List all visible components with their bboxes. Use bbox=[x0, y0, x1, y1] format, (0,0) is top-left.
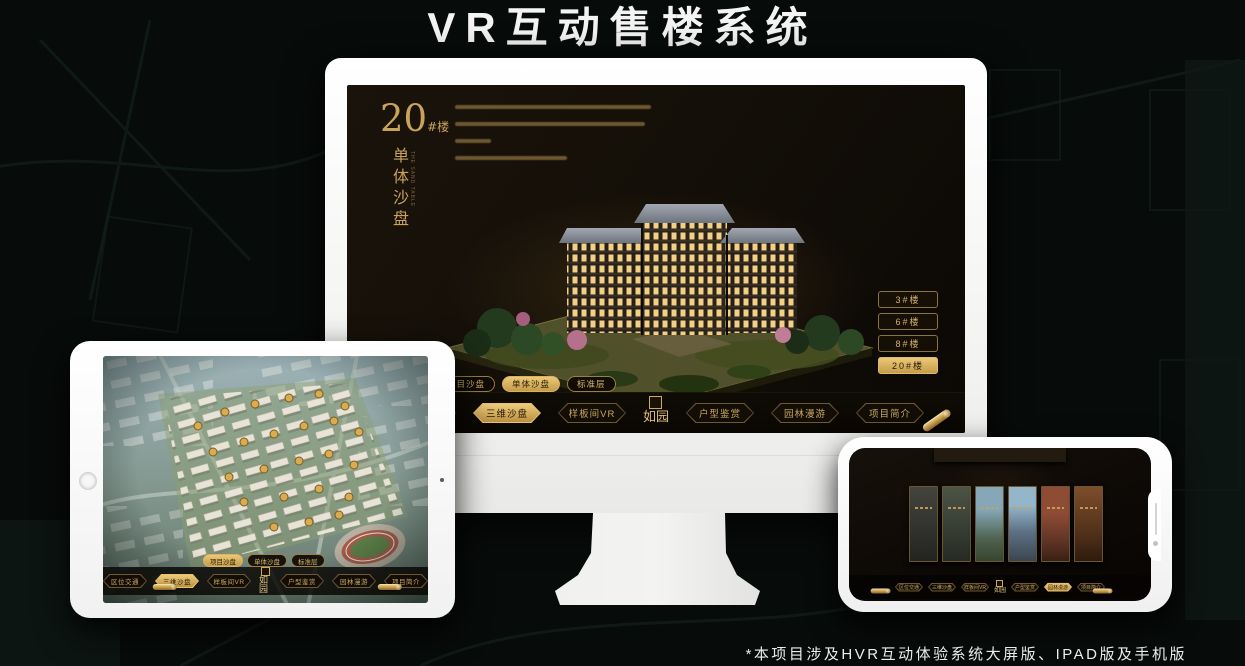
scroll-handle-icon[interactable] bbox=[1093, 589, 1112, 594]
brand-logo: 如园 bbox=[994, 580, 1006, 594]
brand-logo-text: 如园 bbox=[643, 411, 669, 424]
footnote-text: *本项目涉及HVR互动体验系统大屏版、IPAD版及手机版 bbox=[746, 643, 1187, 664]
brand-seal-icon bbox=[649, 396, 662, 409]
menu-item-unit-gallery[interactable]: 户型鉴赏 bbox=[1011, 583, 1039, 592]
building-heading: 20#楼 bbox=[380, 99, 449, 139]
menu-item-project-intro[interactable]: 项目简介 bbox=[856, 403, 924, 423]
description-line bbox=[455, 156, 567, 160]
tablet-sandbox-mode-tabs: 项目沙盘 单体沙盘 标准层 bbox=[203, 554, 325, 567]
menu-item-3d-sandbox[interactable]: 三维沙盘 bbox=[473, 403, 541, 423]
gallery-panel-4[interactable] bbox=[1008, 486, 1037, 562]
floor-button-20[interactable]: 20#楼 bbox=[878, 357, 938, 374]
scroll-handle-icon[interactable] bbox=[153, 584, 176, 590]
menu-item-unit-gallery[interactable]: 户型鉴赏 bbox=[686, 403, 754, 423]
gallery-panel-3[interactable] bbox=[975, 486, 1004, 562]
menu-item-showroom-vr[interactable]: 样板间VR bbox=[207, 574, 251, 588]
menu-item-garden-roam[interactable]: 园林漫游 bbox=[332, 574, 376, 588]
description-line bbox=[455, 105, 651, 109]
gallery-panel-5[interactable] bbox=[1041, 486, 1070, 562]
promo-canvas: VR互动售楼系统 bbox=[0, 0, 1245, 666]
tablet-tab-standard-floor[interactable]: 标准层 bbox=[291, 554, 325, 567]
tab-single-sandbox[interactable]: 单体沙盘 bbox=[502, 376, 560, 392]
scroll-handle-icon[interactable] bbox=[871, 589, 890, 594]
tablet-menubar: 区位交通 三维沙盘 样板间VR 如园 户型鉴赏 园林漫游 项目简介 bbox=[103, 567, 428, 595]
menu-item-location-traffic[interactable]: 区位交通 bbox=[895, 583, 923, 592]
tablet-screen: 项目沙盘 单体沙盘 标准层 区位交通 三维沙盘 样板间VR 如园 户型鉴赏 园林… bbox=[103, 356, 428, 603]
phone-speaker-slit bbox=[1155, 503, 1157, 535]
section-title-vertical: 单体沙盘 bbox=[387, 147, 411, 231]
building-number-unit: #楼 bbox=[427, 120, 449, 134]
floor-button-8[interactable]: 8#楼 bbox=[878, 335, 938, 352]
phone-front-camera bbox=[1153, 541, 1158, 546]
floor-button-group: 3#楼 6#楼 8#楼 20#楼 bbox=[878, 291, 938, 374]
gallery-panel-2[interactable] bbox=[942, 486, 971, 562]
description-line bbox=[455, 122, 645, 126]
brand-seal-icon bbox=[261, 567, 270, 576]
brand-logo: 如园 bbox=[643, 396, 669, 424]
gallery-panel-6[interactable] bbox=[1074, 486, 1103, 562]
brand-seal-icon bbox=[996, 580, 1003, 587]
tablet-camera bbox=[440, 478, 444, 482]
brand-logo-text: 如园 bbox=[994, 588, 1006, 594]
tablet-tab-project-sandbox[interactable]: 项目沙盘 bbox=[203, 554, 243, 567]
menu-item-location-traffic[interactable]: 区位交通 bbox=[103, 574, 147, 588]
sandbox-mode-tabs: 项目沙盘 单体沙盘 标准层 bbox=[437, 376, 616, 392]
menu-item-garden-roam[interactable]: 园林漫游 bbox=[771, 403, 839, 423]
gallery-panel-1[interactable] bbox=[909, 486, 938, 562]
menu-item-3d-sandbox[interactable]: 三维沙盘 bbox=[928, 583, 956, 592]
tablet-home-button[interactable] bbox=[79, 472, 97, 490]
menu-item-showroom-vr[interactable]: 样板间VR bbox=[961, 583, 989, 592]
scroll-handle-icon[interactable] bbox=[378, 584, 401, 590]
scroll-handle-icon[interactable] bbox=[921, 409, 950, 433]
brand-logo: 如园 bbox=[259, 567, 272, 595]
floor-button-3[interactable]: 3#楼 bbox=[878, 291, 938, 308]
building-model-render bbox=[427, 143, 887, 393]
menu-item-unit-gallery[interactable]: 户型鉴赏 bbox=[280, 574, 324, 588]
menu-item-garden-roam[interactable]: 园林漫游 bbox=[1044, 583, 1072, 592]
section-title-english: THE SAND TABLE bbox=[409, 151, 415, 207]
menu-item-showroom-vr[interactable]: 样板间VR bbox=[558, 403, 626, 423]
tablet-device: 项目沙盘 单体沙盘 标准层 区位交通 三维沙盘 样板间VR 如园 户型鉴赏 园林… bbox=[70, 341, 455, 618]
phone-screen: 区位交通 三维沙盘 样板间VR 如园 户型鉴赏 园林漫游 项目简介 bbox=[849, 448, 1151, 601]
tablet-tab-single-sandbox[interactable]: 单体沙盘 bbox=[247, 554, 287, 567]
description-paragraph bbox=[455, 105, 651, 173]
brand-logo-text: 如园 bbox=[259, 577, 272, 595]
description-line bbox=[455, 139, 491, 143]
phone-menubar: 区位交通 三维沙盘 样板间VR 如园 户型鉴赏 园林漫游 项目简介 bbox=[849, 575, 1151, 599]
floor-button-6[interactable]: 6#楼 bbox=[878, 313, 938, 330]
gallery-panels bbox=[909, 486, 1103, 562]
phone-scene-beam bbox=[934, 448, 1067, 462]
phone-device: 区位交通 三维沙盘 样板间VR 如园 户型鉴赏 园林漫游 项目简介 bbox=[838, 437, 1172, 612]
page-title: VR互动售楼系统 bbox=[0, 0, 1245, 56]
tab-standard-floor[interactable]: 标准层 bbox=[567, 376, 616, 392]
building-number: 20 bbox=[380, 97, 427, 140]
